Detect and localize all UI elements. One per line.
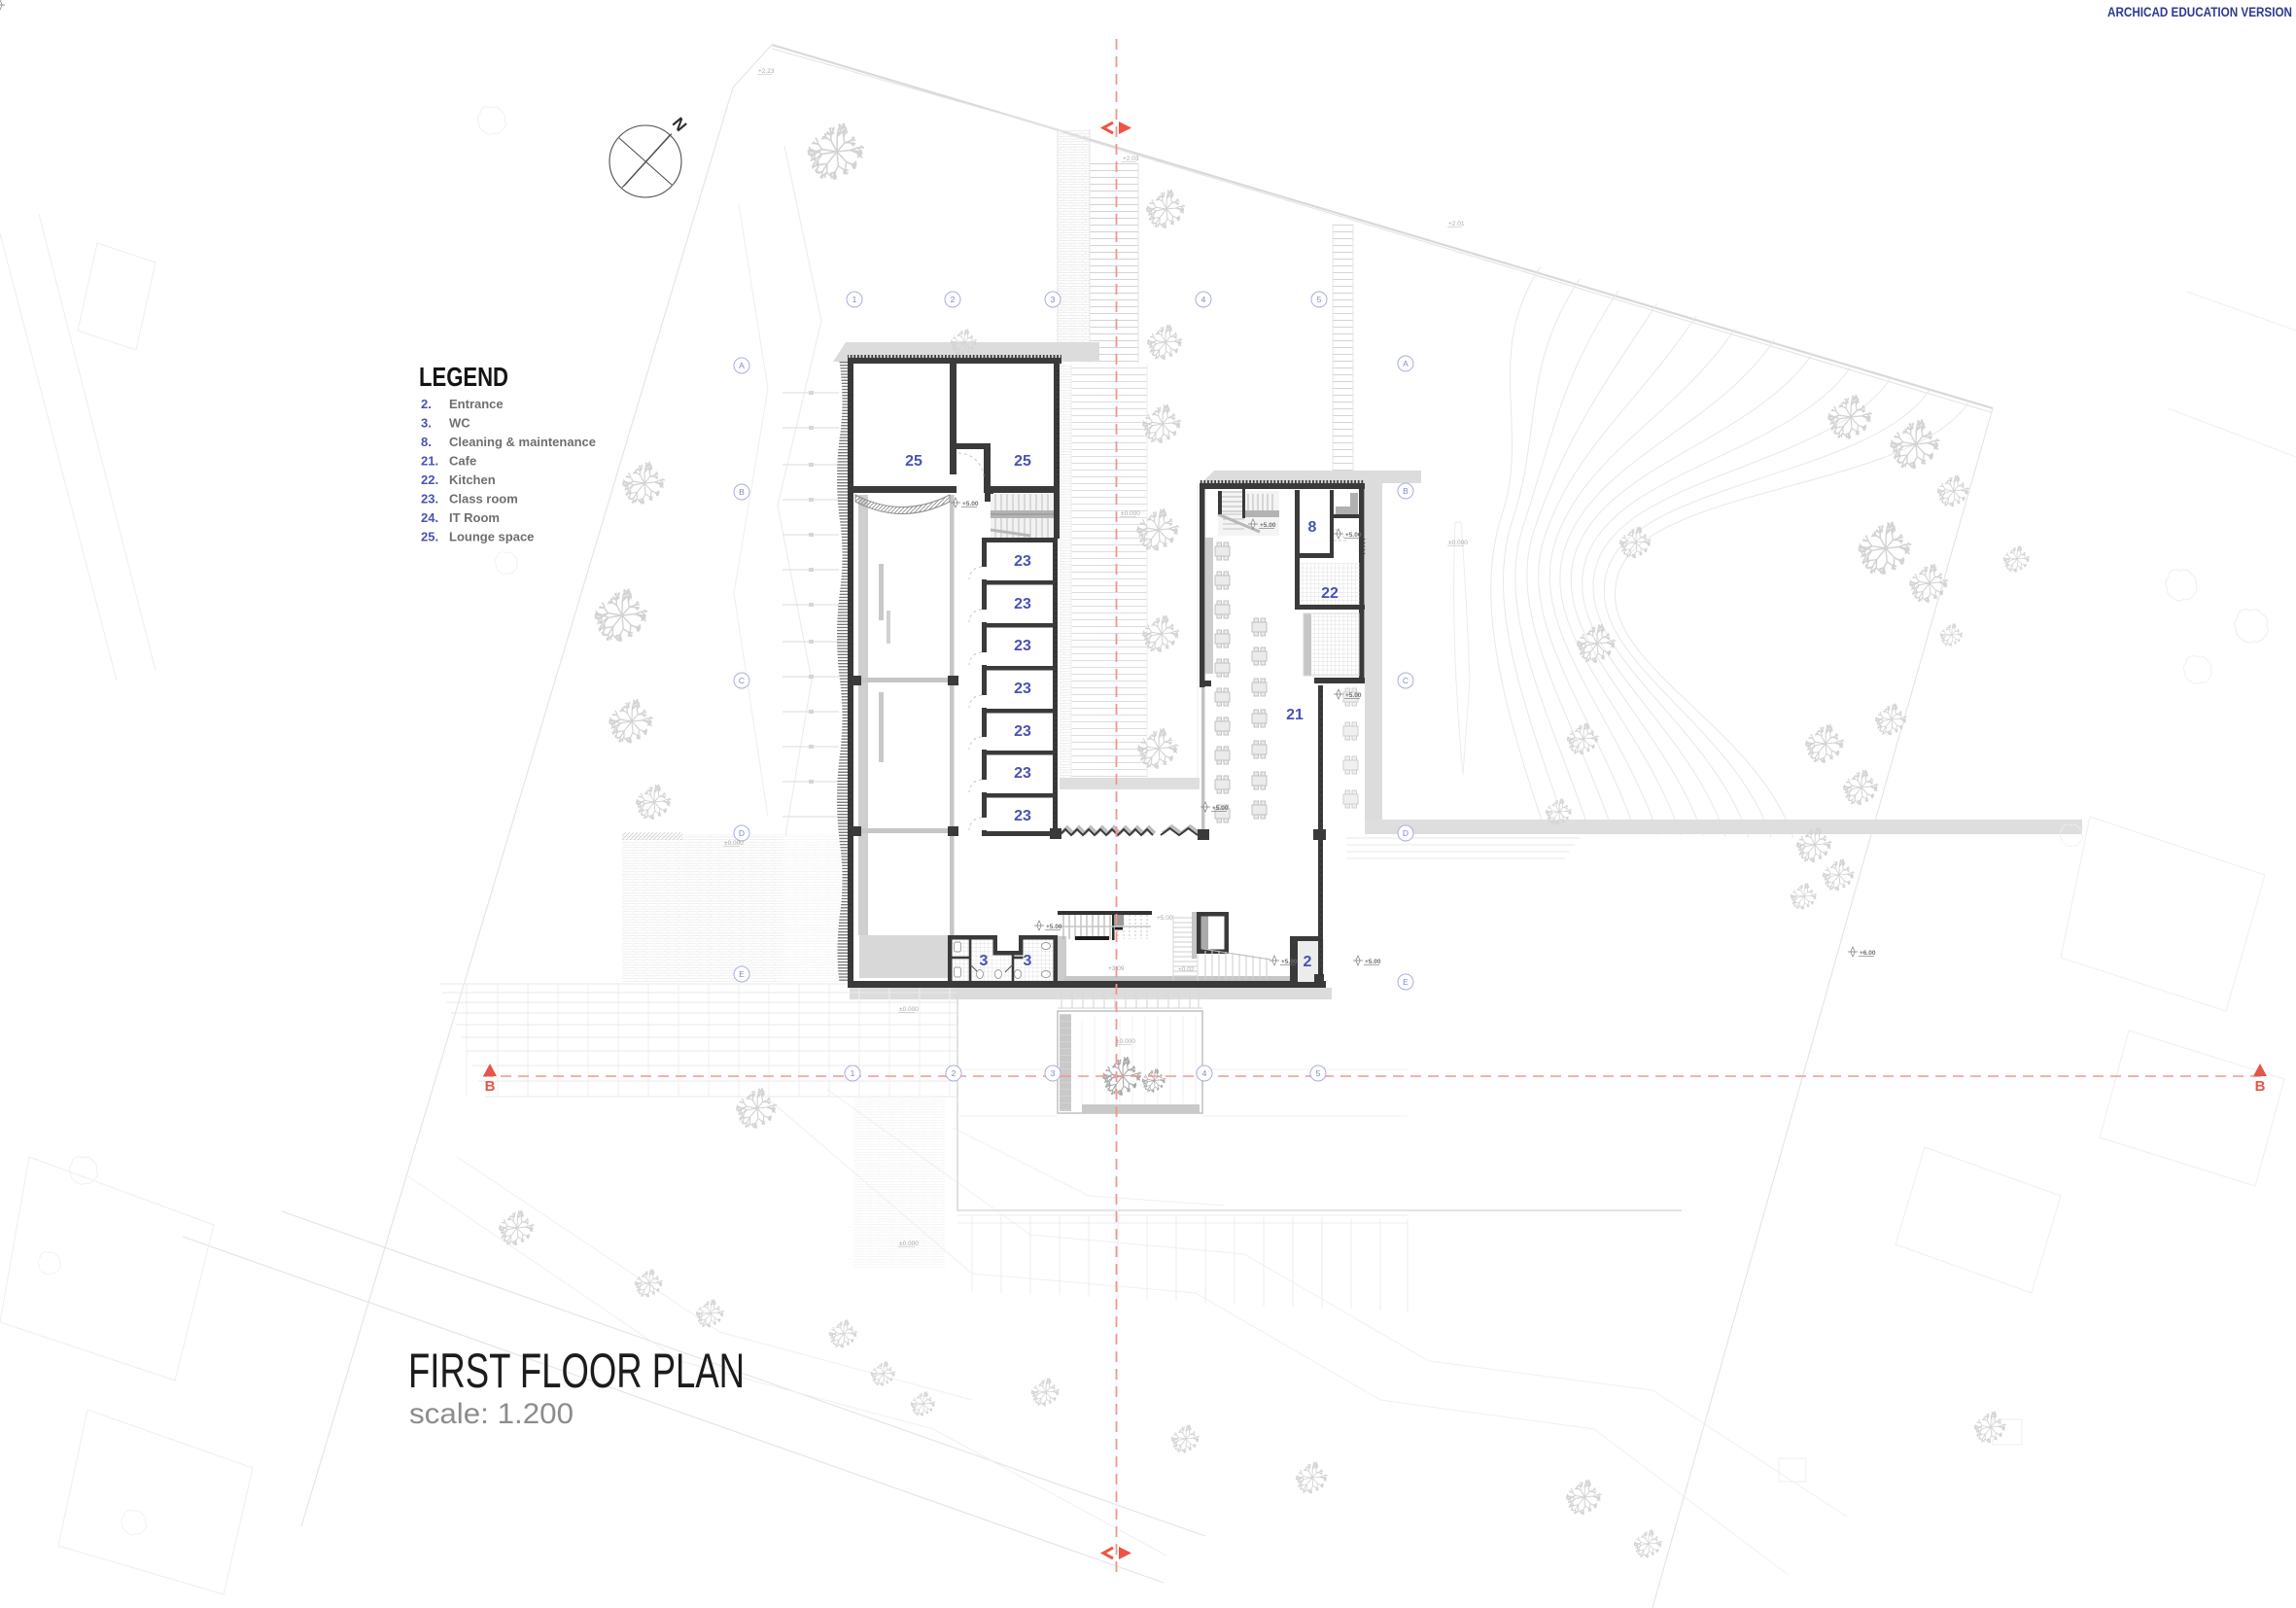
svg-text:scale: 1.200: scale: 1.200: [409, 1398, 574, 1430]
svg-text:B: B: [1403, 486, 1409, 496]
svg-text:3.: 3.: [421, 416, 432, 431]
svg-text:25.: 25.: [421, 530, 438, 544]
svg-text:B: B: [2255, 1078, 2266, 1095]
svg-text:+0.02: +0.02: [1178, 966, 1195, 973]
svg-text:+5.00: +5.00: [962, 501, 979, 507]
svg-text:3: 3: [1051, 295, 1056, 304]
svg-text:Cafe: Cafe: [449, 454, 476, 469]
svg-text:2: 2: [951, 295, 956, 304]
svg-text:Cleaning & maintenance: Cleaning & maintenance: [449, 435, 596, 449]
svg-text:ARCHICAD EDUCATION VERSION: ARCHICAD EDUCATION VERSION: [2107, 5, 2292, 19]
svg-text:C: C: [739, 676, 745, 685]
svg-text:2: 2: [952, 1068, 957, 1078]
svg-text:3: 3: [1024, 953, 1032, 969]
svg-text:23: 23: [1014, 808, 1031, 824]
svg-text:B: B: [739, 487, 745, 497]
svg-text:2.: 2.: [421, 397, 432, 411]
svg-text:A: A: [739, 361, 745, 370]
svg-text:+2.23: +2.23: [758, 68, 775, 75]
svg-text:3: 3: [1051, 1068, 1056, 1078]
svg-text:+5.00: +5.00: [1212, 805, 1229, 812]
svg-text:21.: 21.: [421, 454, 438, 469]
svg-text:Lounge space: Lounge space: [449, 530, 534, 544]
svg-text:25: 25: [905, 453, 922, 470]
svg-text:A: A: [1403, 359, 1409, 368]
svg-text:2: 2: [1304, 954, 1312, 970]
svg-text:FIRST FLOOR PLAN: FIRST FLOOR PLAN: [408, 1344, 745, 1398]
svg-text:Entrance: Entrance: [449, 397, 504, 411]
svg-text:±0.000: ±0.000: [724, 840, 744, 847]
svg-text:23: 23: [1014, 596, 1031, 612]
svg-text:+5.00: +5.00: [1260, 522, 1276, 529]
svg-text:+2.03: +2.03: [1123, 156, 1139, 162]
svg-text:E: E: [739, 969, 745, 979]
svg-text:22: 22: [1321, 585, 1339, 602]
svg-text:±0.000: ±0.000: [1116, 1038, 1135, 1045]
svg-text:23: 23: [1014, 765, 1031, 782]
svg-text:25: 25: [1014, 453, 1031, 470]
svg-text:+2.01: +2.01: [1448, 221, 1465, 227]
svg-text:D: D: [739, 828, 745, 838]
svg-text:23: 23: [1014, 723, 1031, 740]
svg-text:8: 8: [1308, 519, 1317, 536]
svg-text:23: 23: [1014, 638, 1031, 654]
svg-text:+5.00: +5.00: [1345, 692, 1362, 699]
svg-text:23: 23: [1014, 553, 1031, 570]
svg-text:E: E: [1403, 977, 1409, 987]
svg-text:1: 1: [852, 295, 857, 304]
svg-text:23.: 23.: [421, 492, 438, 507]
svg-text:±0.000: ±0.000: [1121, 510, 1140, 517]
svg-text:8.: 8.: [421, 435, 432, 449]
svg-text:D: D: [1403, 828, 1409, 838]
svg-text:±0.000: ±0.000: [899, 1241, 919, 1247]
svg-text:5: 5: [1316, 1068, 1321, 1078]
svg-text:+5.00: +5.00: [1046, 924, 1062, 930]
svg-text:21: 21: [1286, 707, 1304, 723]
svg-text:WC: WC: [449, 416, 470, 431]
svg-text:+5.00: +5.00: [1365, 959, 1381, 965]
svg-text:22.: 22.: [421, 472, 438, 487]
svg-text:24.: 24.: [421, 510, 438, 525]
svg-text:IT Room: IT Room: [449, 510, 500, 525]
svg-text:C: C: [1403, 676, 1409, 685]
svg-text:4: 4: [1202, 1068, 1207, 1078]
svg-text:Class room: Class room: [449, 492, 518, 507]
svg-text:B: B: [485, 1078, 496, 1095]
svg-text:+3.09: +3.09: [1108, 965, 1125, 972]
svg-text:1: 1: [851, 1068, 855, 1078]
svg-text:4: 4: [1201, 295, 1206, 304]
svg-text:LEGEND: LEGEND: [419, 362, 508, 392]
svg-text:+5.00: +5.00: [1345, 532, 1362, 539]
svg-text:Kitchen: Kitchen: [449, 472, 496, 487]
svg-text:+6.00: +6.00: [1860, 950, 1876, 957]
svg-text:5: 5: [1317, 295, 1322, 304]
svg-text:+5.00: +5.00: [1281, 959, 1298, 965]
svg-text:±0.000: ±0.000: [1448, 540, 1468, 546]
svg-text:23: 23: [1014, 681, 1031, 697]
svg-text:3: 3: [980, 953, 989, 969]
svg-text:±0.000: ±0.000: [899, 1006, 919, 1013]
svg-text:+5.00: +5.00: [1157, 915, 1173, 922]
